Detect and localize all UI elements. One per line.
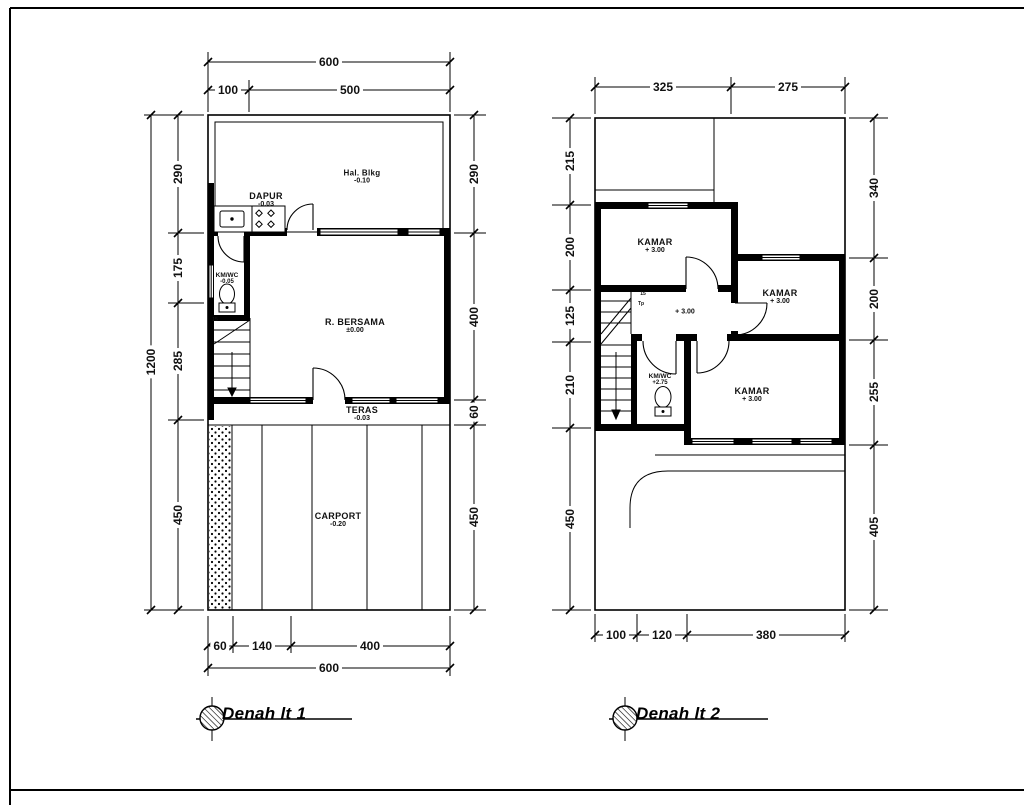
room-kmwc-1: KM/WC -0.05 <box>216 272 239 286</box>
detail-marker-icon <box>200 706 224 730</box>
room-carport: CARPORT -0.20 <box>315 511 362 529</box>
p1-dim-right-1: 400 <box>468 304 480 330</box>
p2-stair-label: 15 <box>640 291 646 297</box>
p2-dim-left-4: 450 <box>564 506 576 532</box>
hall-level: + 3.00 <box>675 309 695 316</box>
sheet-border <box>10 8 1024 805</box>
p2-dim-left-1: 200 <box>564 234 576 260</box>
p1-dim-top-0: 100 <box>215 84 241 96</box>
room-r-bersama: R. BERSAMA ±0.00 <box>325 317 385 335</box>
p2-dim-left-2: 125 <box>564 303 576 329</box>
p1-dim-top-overall: 600 <box>316 56 342 68</box>
plan1-title: Denah lt 1 <box>222 704 306 724</box>
drawing-sheet: 600 100 500 1200 290 175 285 450 290 400… <box>0 0 1024 805</box>
p2-dim-bottom-0: 100 <box>603 629 629 641</box>
p2-dim-bottom-1: 120 <box>649 629 675 641</box>
p1-dim-left-0: 290 <box>172 161 184 187</box>
room-dapur: DAPUR -0.03 <box>249 191 283 209</box>
room-kmwc-2: KM/WC +2.75 <box>649 373 672 387</box>
p1-dim-left-1: 175 <box>172 255 184 281</box>
room-teras: TERAS -0.03 <box>346 405 378 423</box>
detail-marker-icon <box>613 706 637 730</box>
p1-dim-right-2: 60 <box>468 402 480 421</box>
p1-dim-right-3: 450 <box>468 504 480 530</box>
plan1-outline <box>208 115 450 610</box>
p2-dim-top-1: 275 <box>775 81 801 93</box>
room-hal-blkg: Hal. Blkg -0.10 <box>344 168 381 185</box>
plan1-kitchen-counter <box>214 206 285 232</box>
p1-dim-bottom-overall: 600 <box>316 662 342 674</box>
p2-dim-right-2: 255 <box>868 379 880 405</box>
p1-dim-left-2: 285 <box>172 348 184 374</box>
plan2-toilet-icon <box>655 387 671 417</box>
p1-dim-left-3: 450 <box>172 502 184 528</box>
p1-dim-bottom-2: 400 <box>357 640 383 652</box>
plan2-title: Denah lt 2 <box>636 704 720 724</box>
p1-dim-right-0: 290 <box>468 161 480 187</box>
p2-dim-top-0: 325 <box>650 81 676 93</box>
p1-dim-top-1: 500 <box>337 84 363 96</box>
p2-dim-left-3: 210 <box>564 372 576 398</box>
plan1-toilet-icon <box>219 284 235 312</box>
p2-dim-bottom-2: 380 <box>753 629 779 641</box>
p2-dim-left-0: 215 <box>564 148 576 174</box>
p2-stair-label-2: Tp <box>638 301 644 307</box>
p2-dim-right-0: 340 <box>868 175 880 201</box>
room-kamar-2: KAMAR + 3.00 <box>763 288 798 306</box>
p1-stair-label: 15 <box>212 317 218 323</box>
room-kamar-3: KAMAR + 3.00 <box>735 386 770 404</box>
p2-dim-right-1: 200 <box>868 286 880 312</box>
planting-strip <box>209 426 232 609</box>
p1-dim-left-overall: 1200 <box>145 346 157 379</box>
p1-dim-bottom-0: 60 <box>210 640 229 652</box>
room-kamar-1: KAMAR + 3.00 <box>638 237 673 255</box>
p2-dim-right-3: 405 <box>868 514 880 540</box>
p1-dim-bottom-1: 140 <box>249 640 275 652</box>
